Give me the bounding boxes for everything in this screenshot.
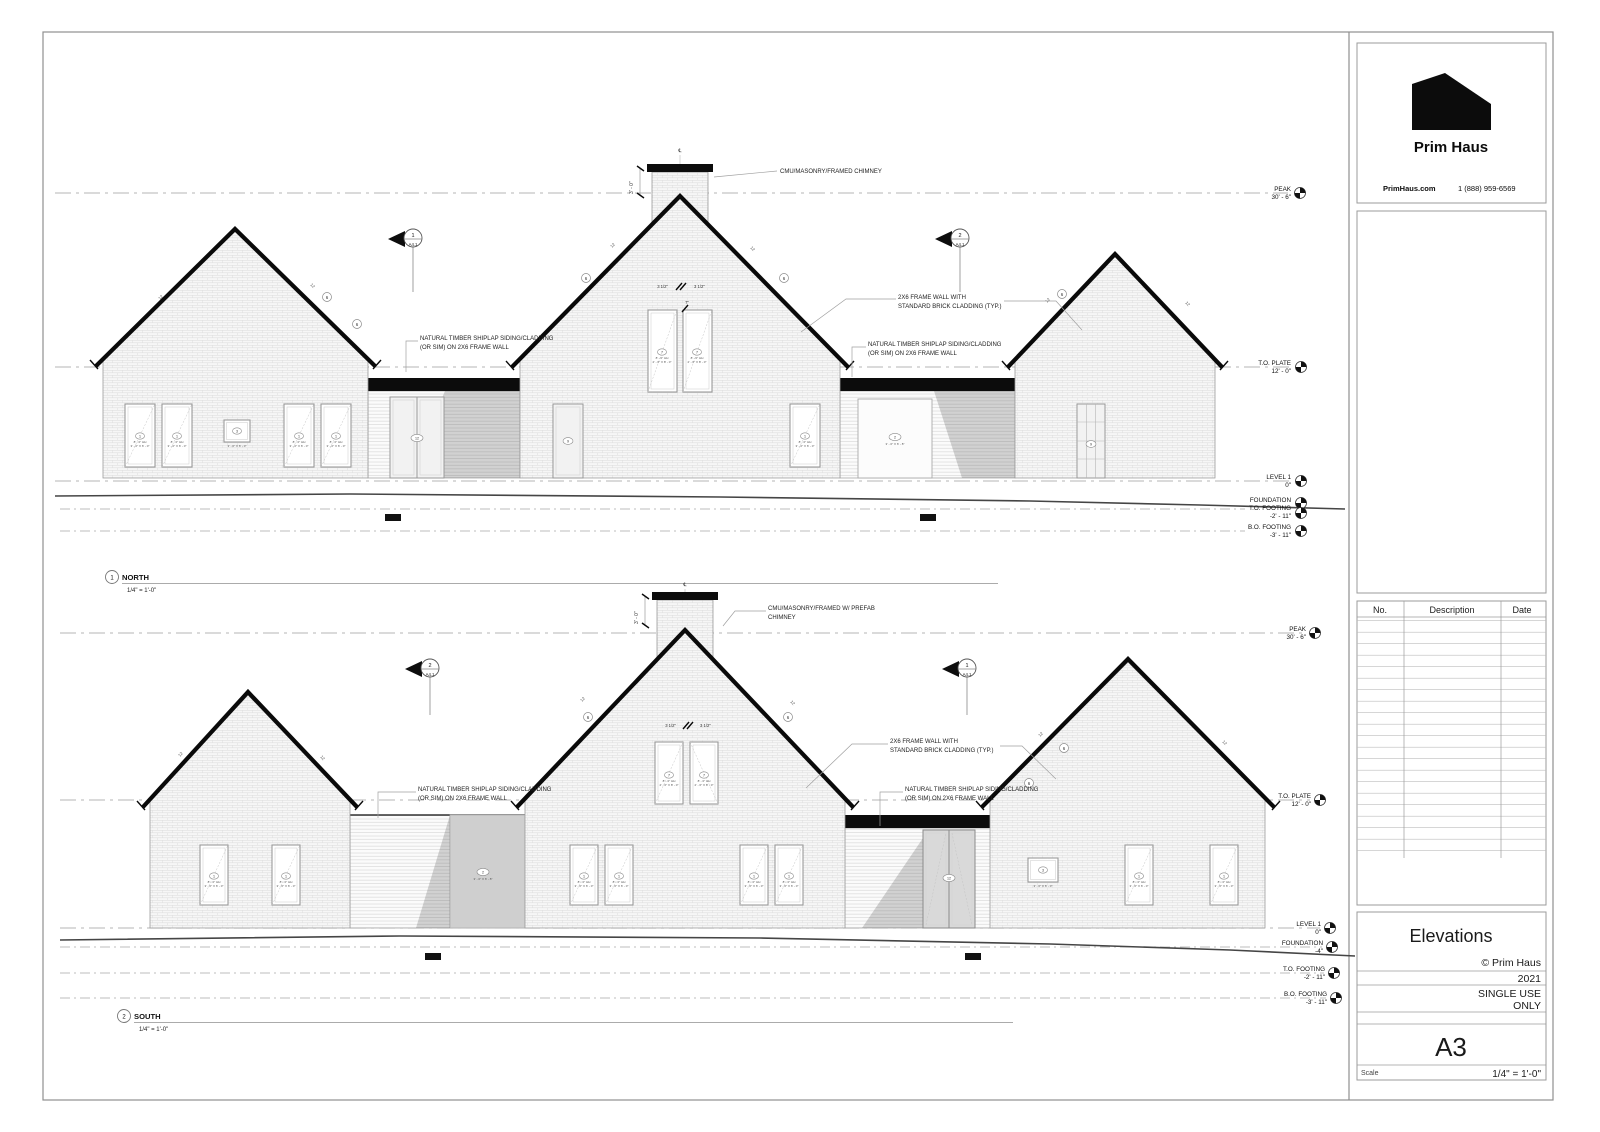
svg-text:7: 7 [696,350,698,354]
svg-text:SOUTH: SOUTH [134,1012,161,1021]
north-connector-right: 2 3' - 0" X 6' - 8" [840,378,1015,478]
notes-box [1357,211,1546,593]
tall-window: 7 8' - 0" HH2' - 6" X 8' - 0" [690,742,718,804]
svg-text:A4.1: A4.1 [426,672,435,677]
svg-text:PEAK: PEAK [1289,626,1307,633]
north-elevation: ℄ 3' - 0" 12 [55,148,1345,594]
scale-label: Scale [1361,1070,1379,1077]
panel-size: 3' - 0" X 6' - 8" [886,442,905,446]
south-elevation: ℄ 3' - 0" 2 3' - 0" X 6' - 8" [60,582,1355,1033]
copyright: © Prim Haus [1481,957,1541,969]
svg-text:A4.1: A4.1 [956,242,965,247]
south-center-gable: 7 8' - 0" HH2' - 6" X 8' - 0" 7 8' - 0" … [511,630,859,928]
panel-tag: 2 [894,435,896,439]
south-right-gable: 3 3' - 0" X 6' - 0" 1 8' - 0" HH3' - 0" … [976,659,1280,928]
shiplap-note-1b: (OR SIM) ON 2X6 FRAME WALL [418,796,507,802]
svg-text:7: 7 [668,773,670,777]
mullion-dim-left: 3 1/2" [657,284,668,289]
svg-text:1: 1 [788,874,790,878]
south-connector-left: 2 3' - 0" X 6' - 8" [350,815,525,928]
sheet-svg: ℄ 3' - 0" 12 [0,0,1600,1132]
svg-text:1: 1 [965,663,968,669]
logo-box: Prim Haus PrimHaus.com 1 (888) 959-6569 [1357,43,1546,203]
svg-text:1: 1 [753,874,755,878]
svg-text:2: 2 [958,233,961,239]
window: 1 8' - 0" HH3' - 0" X 6' - 0" [200,845,228,905]
window: 1 8' - 0" HH3' - 0" X 6' - 0" [125,404,155,467]
brand-phone: 1 (888) 959-6569 [1458,184,1516,193]
framewall-note-2: STANDARD BRICK CLADDING (TYP.) [890,748,993,754]
svg-text:B.O. FOOTING: B.O. FOOTING [1284,991,1327,998]
svg-text:3' - 0" X 6' - 0": 3' - 0" X 6' - 0" [780,884,799,888]
south-left-gable: 1 8' - 0" HH3' - 0" X 6' - 0" 1 8' - 0" … [137,692,363,928]
shiplap-note-1b: (OR SIM) ON 2X6 FRAME WALL [420,345,509,351]
svg-text:NORTH: NORTH [122,573,149,582]
chimney-note-1: CMU/MASONRY/FRAMED W/ PREFAB [768,606,875,612]
svg-text:-3' - 11": -3' - 11" [1306,999,1327,1006]
window: 1 8' - 0" HH3' - 0" X 6' - 0" [605,845,633,905]
svg-text:1: 1 [411,233,414,239]
svg-text:3' - 0" X 6' - 0": 3' - 0" X 6' - 0" [205,884,224,888]
svg-text:2: 2 [428,663,431,669]
sheet-info-box: Elevations © Prim Haus 2021 SINGLE USE O… [1357,912,1546,1080]
sheet-title: Elevations [1409,926,1492,946]
mullion-dim-right: 3 1/2" [700,723,711,728]
usage-line-1: SINGLE USE [1478,988,1541,1000]
svg-text:T.O. FOOTING: T.O. FOOTING [1283,966,1325,973]
svg-text:12' - 0": 12' - 0" [1291,801,1311,808]
svg-text:1: 1 [618,874,620,878]
shiplap-note-2b: (OR SIM) ON 2X6 FRAME WALL [868,351,957,357]
svg-text:T.O. PLATE: T.O. PLATE [1258,360,1291,367]
window: 1 8' - 0" HH3' - 0" X 6' - 0" [775,845,803,905]
window: 1 8' - 0" HH3' - 0" X 6' - 0" [570,845,598,905]
svg-text:0": 0" [1285,482,1291,489]
north-right-gable: 9 [1002,254,1228,478]
svg-text:1: 1 [335,434,337,438]
door: 9 [553,404,583,478]
north-connector-left: 12 [368,378,520,478]
svg-text:1: 1 [804,434,806,438]
view-title-south: 2 SOUTH 1/4" = 1'-0" [118,1010,1014,1034]
svg-text:LEVEL 1: LEVEL 1 [1266,474,1291,481]
window: 1 8' - 0" HH3' - 0" X 6' - 0" [740,845,768,905]
framewall-note-2: STANDARD BRICK CLADDING (TYP.) [898,304,1001,310]
window: 1 8' - 0" HH3' - 0" X 6' - 0" [1210,845,1238,905]
mullion-dim-left: 3 1/2" [665,723,676,728]
svg-text:A4.1: A4.1 [409,242,418,247]
svg-text:1: 1 [298,434,300,438]
level-labels-south: PEAK 30' - 6" T.O. PLATE 12' - 0" LEVEL … [1278,626,1341,1006]
rev-col-date: Date [1512,605,1531,615]
svg-text:T.O. PLATE: T.O. PLATE [1278,793,1311,800]
svg-text:2' - 6" X 8' - 0": 2' - 6" X 8' - 0" [688,360,707,364]
north-left-gable: 1 8' - 0" HH3' - 0" X 6' - 0" 1 8' - 0" … [90,229,381,478]
view-title-north: 1 NORTH 1/4" = 1'-0" [106,571,999,595]
north-center-gable: 7 8' - 0" HH2' - 6" X 8' - 0" 7 8' - 0" … [506,196,854,478]
svg-text:9: 9 [567,439,569,443]
svg-text:B.O. FOOTING: B.O. FOOTING [1248,524,1291,531]
door-tag: 12 [415,436,419,440]
framewall-note-1: 2X6 FRAME WALL WITH [890,739,958,745]
seven-dim: 7" [685,300,689,305]
small-window: 3 3' - 0" X 6' - 0" [224,420,250,448]
svg-text:9: 9 [1090,442,1092,446]
svg-text:3: 3 [1042,868,1044,872]
svg-text:1: 1 [213,874,215,878]
svg-text:12: 12 [749,245,756,252]
svg-text:3' - 0" X 6' - 0": 3' - 0" X 6' - 0" [610,884,629,888]
svg-text:12: 12 [1044,296,1051,303]
wall-panel: 2 3' - 0" X 6' - 8" [858,399,932,478]
svg-text:7: 7 [703,773,705,777]
south-connector-right: 12 [845,815,995,928]
window: 1 8' - 0" HH3' - 0" X 6' - 0" [1125,845,1153,905]
svg-text:12: 12 [177,750,184,757]
chimney-height-dim: 3' - 0" [634,611,640,624]
svg-text:12: 12 [1037,730,1044,737]
svg-text:3' - 0" X 6' - 0": 3' - 0" X 6' - 0" [796,444,815,448]
sheet-number: A3 [1435,1032,1467,1062]
prim-haus-logo-icon [1412,73,1491,130]
svg-text:3: 3 [236,429,238,433]
svg-text:FOUNDATION: FOUNDATION [1250,497,1292,504]
tall-window: 7 8' - 0" HH2' - 6" X 8' - 0" [648,310,677,392]
rev-col-description: Description [1429,605,1474,615]
svg-text:3' - 0" X 6' - 0": 3' - 0" X 6' - 0" [131,444,150,448]
svg-text:FOUNDATION: FOUNDATION [1282,940,1324,947]
section-marker-2-north: 2 A4.1 [935,229,969,292]
svg-text:T.O. FOOTING: T.O. FOOTING [1249,505,1291,512]
scale-value: 1/4" = 1'-0" [1492,1069,1541,1080]
svg-text:7: 7 [661,350,663,354]
svg-text:3' - 0" X 6' - 0": 3' - 0" X 6' - 0" [290,444,309,448]
double-door: 12 [390,397,444,478]
svg-text:1: 1 [285,874,287,878]
panel-size: 3' - 0" X 6' - 8" [474,877,493,881]
svg-text:A4.1: A4.1 [963,672,972,677]
svg-text:1: 1 [583,874,585,878]
svg-text:3' - 0" X 6' - 0": 3' - 0" X 6' - 0" [228,444,247,448]
svg-text:2' - 6" X 8' - 0": 2' - 6" X 8' - 0" [660,783,679,787]
svg-text:3' - 0" X 6' - 0": 3' - 0" X 6' - 0" [327,444,346,448]
svg-text:2' - 6" X 8' - 0": 2' - 6" X 8' - 0" [695,783,714,787]
svg-text:-4": -4" [1315,948,1323,955]
svg-text:3' - 0" X 6' - 0": 3' - 0" X 6' - 0" [1034,884,1053,888]
revision-table: No. Description Date [1357,601,1546,905]
rev-col-no: No. [1373,605,1387,615]
svg-text:0": 0" [1315,929,1321,936]
svg-text:30' - 6": 30' - 6" [1286,634,1306,641]
drawing-sheet: ℄ 3' - 0" 12 [0,0,1600,1132]
usage-line-2: ONLY [1513,1000,1541,1012]
svg-text:12: 12 [579,695,586,702]
svg-text:1: 1 [176,434,178,438]
svg-text:1: 1 [139,434,141,438]
revision-rows [1357,617,1546,858]
svg-text:2' - 6" X 8' - 0": 2' - 6" X 8' - 0" [653,360,672,364]
centerline-symbol: ℄ [677,148,682,154]
framewall-note-1: 2X6 FRAME WALL WITH [898,295,966,301]
chimney-height-dim: 3' - 0" [629,181,635,194]
year: 2021 [1518,973,1542,985]
window: 1 8' - 0" HH3' - 0" X 6' - 0" [272,845,300,905]
tall-window: 7 8' - 0" HH2' - 6" X 8' - 0" [655,742,683,804]
svg-text:-3' - 11": -3' - 11" [1270,532,1291,539]
brand-name: Prim Haus [1414,139,1488,156]
window: 1 8' - 0" HH3' - 0" X 6' - 0" [321,404,351,467]
svg-text:12: 12 [309,282,316,289]
panel-tag: 2 [482,870,484,874]
svg-text:3' - 0" X 6' - 0": 3' - 0" X 6' - 0" [745,884,764,888]
tall-window: 7 8' - 0" HH2' - 6" X 8' - 0" [683,310,712,392]
shiplap-note-2a: NATURAL TIMBER SHIPLAP SIDING/CLADDING [905,787,1039,793]
double-door: 12 [923,830,975,928]
shiplap-note-2b: (OR SIM) ON 2X6 FRAME WALL [905,796,994,802]
svg-text:PEAK: PEAK [1274,186,1292,193]
section-marker-2-south: 2 A4.1 [405,659,439,715]
door-tag: 12 [947,876,951,880]
chimney-note: CMU/MASONRY/FRAMED CHIMNEY [780,169,882,175]
section-marker-1-south: 1 A4.1 [942,659,976,715]
shiplap-note-2a: NATURAL TIMBER SHIPLAP SIDING/CLADDING [868,342,1002,348]
svg-text:12: 12 [1221,739,1228,746]
svg-text:1/4" = 1'-0": 1/4" = 1'-0" [127,588,156,594]
svg-text:12: 12 [789,699,796,706]
titleblock: Prim Haus PrimHaus.com 1 (888) 959-6569 … [1357,43,1546,1080]
centerline-symbol: ℄ [682,582,687,588]
shiplap-note-1a: NATURAL TIMBER SHIPLAP SIDING/CLADDING [418,787,552,793]
brand-website: PrimHaus.com [1383,184,1436,193]
shiplap-note-1a: NATURAL TIMBER SHIPLAP SIDING/CLADDING [420,336,554,342]
svg-text:12: 12 [319,754,326,761]
svg-text:3' - 0" X 6' - 0": 3' - 0" X 6' - 0" [168,444,187,448]
level-labels-north: PEAK 30' - 6" T.O. PLATE 12' - 0" LEVEL … [1248,186,1307,539]
svg-text:-2' - 11": -2' - 11" [1304,974,1325,981]
grade-line-north [55,494,1345,509]
svg-text:12: 12 [1184,300,1191,307]
svg-text:12: 12 [609,241,616,248]
svg-text:1/4" = 1'-0": 1/4" = 1'-0" [139,1027,168,1033]
chimney-note-2: CHIMNEY [768,615,796,621]
svg-text:3' - 0" X 6' - 0": 3' - 0" X 6' - 0" [575,884,594,888]
svg-text:3' - 0" X 6' - 0": 3' - 0" X 6' - 0" [1130,884,1149,888]
svg-text:LEVEL 1: LEVEL 1 [1296,921,1321,928]
svg-text:-2' - 11": -2' - 11" [1270,513,1291,520]
window: 1 8' - 0" HH3' - 0" X 6' - 0" [162,404,192,467]
window: 1 8' - 0" HH3' - 0" X 6' - 0" [790,404,820,467]
svg-text:1: 1 [1223,874,1225,878]
window: 1 8' - 0" HH3' - 0" X 6' - 0" [284,404,314,467]
svg-text:3' - 0" X 6' - 0": 3' - 0" X 6' - 0" [1215,884,1234,888]
section-marker-1-north: 1 A4.1 [388,229,422,292]
svg-text:3' - 0" X 6' - 0": 3' - 0" X 6' - 0" [277,884,296,888]
glass-door: 9 [1077,404,1105,478]
grade-line-south [60,936,1355,956]
page-border [43,32,1553,1100]
mullion-dim-right: 3 1/2" [694,284,705,289]
svg-text:1: 1 [1138,874,1140,878]
svg-text:12' - 0": 12' - 0" [1271,368,1291,375]
svg-text:30' - 6": 30' - 6" [1271,194,1291,201]
